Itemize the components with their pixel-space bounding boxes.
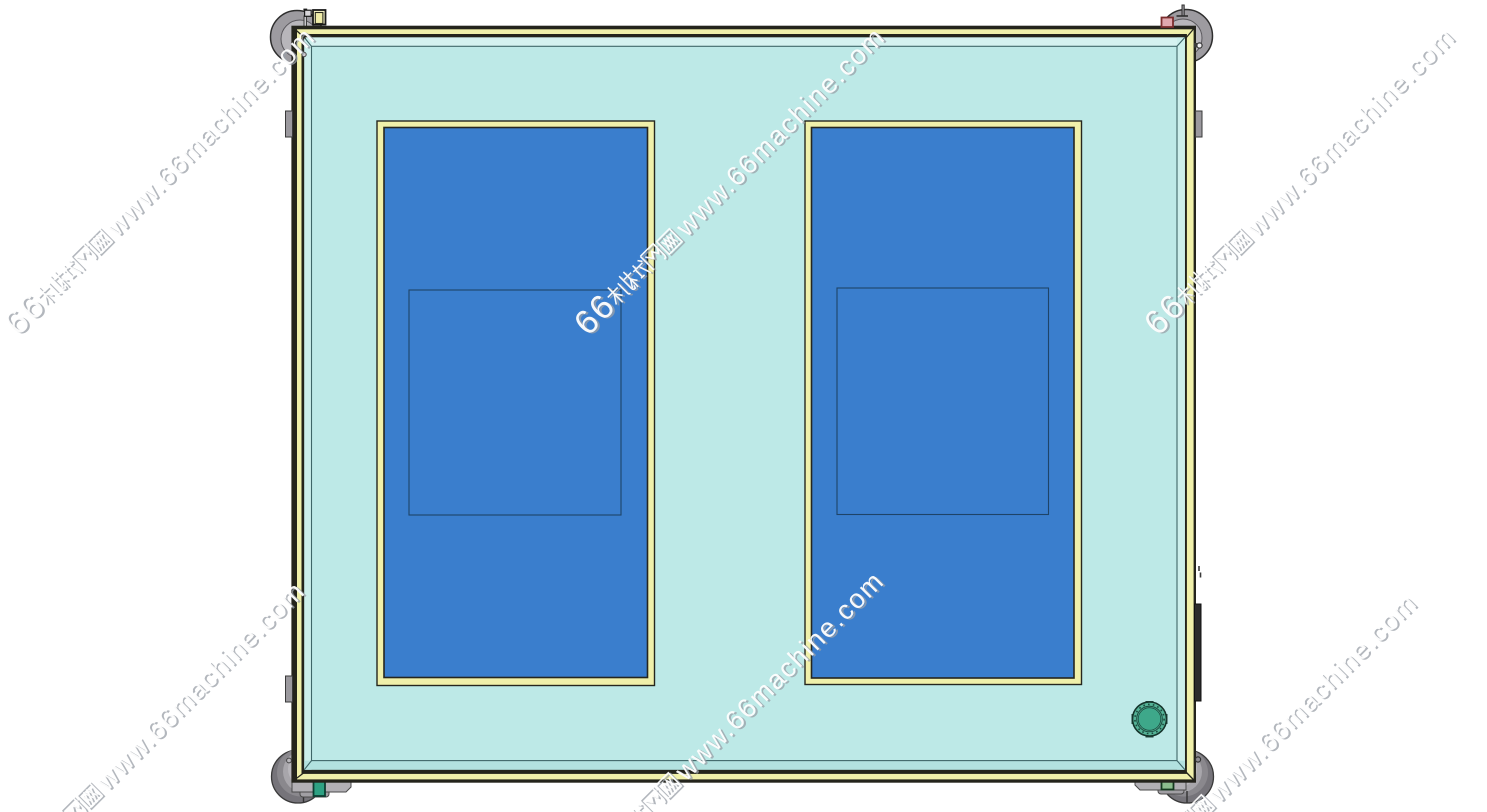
svg-text:www.66machine.com: www.66machine.com	[1201, 587, 1423, 809]
svg-text:www.66machine.com: www.66machine.com	[1239, 21, 1461, 243]
